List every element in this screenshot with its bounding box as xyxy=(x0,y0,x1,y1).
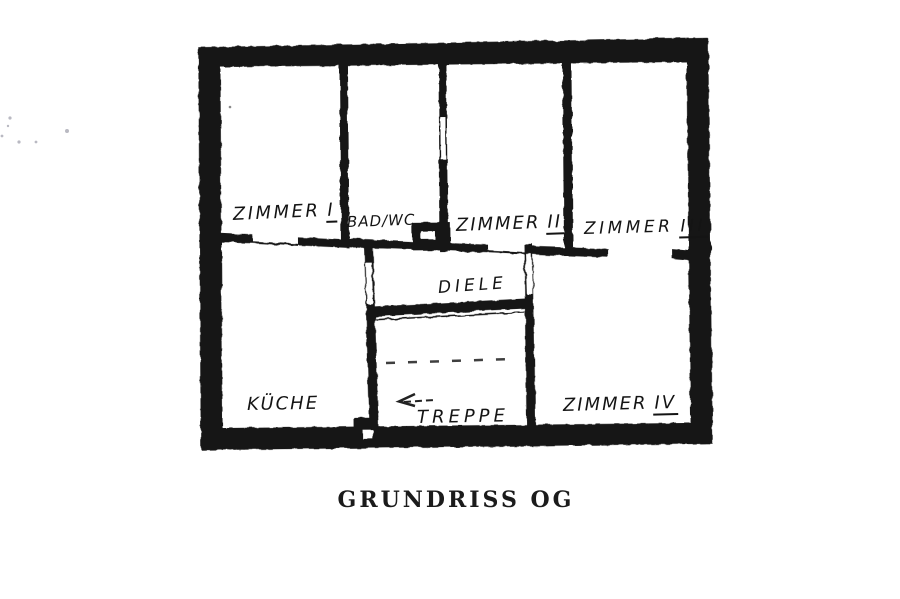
room-name: ZIMMER xyxy=(232,200,320,225)
speck-dot xyxy=(7,125,9,127)
room-numeral: II xyxy=(545,213,564,235)
room-name: ZIMMER xyxy=(456,212,541,236)
room-name: TREPPE xyxy=(417,405,509,428)
speck-dot xyxy=(8,116,11,119)
room-numeral: I xyxy=(325,201,338,222)
stairs-arrow-head xyxy=(399,394,415,406)
room-label-zimmer-4: ZIMMERIV xyxy=(563,394,679,418)
room-label-zimmer-2: ZIMMERII xyxy=(456,213,565,238)
wall-zimmer1-bottom-left xyxy=(216,233,253,243)
walls-group xyxy=(197,38,713,450)
plan-caption: GRUNDRISS OG xyxy=(338,487,575,513)
room-numeral: IV xyxy=(652,394,678,416)
speck-dot xyxy=(1,135,4,138)
door-badwc-zimmer2 xyxy=(440,117,445,159)
room-numeral: III xyxy=(678,218,708,239)
room-name: BAD/WC xyxy=(347,211,416,231)
stairs-dashed-line xyxy=(386,359,512,363)
door-treppe-bottom xyxy=(363,430,373,439)
speck-dot xyxy=(65,129,69,133)
room-name: KÜCHE xyxy=(247,393,319,415)
room-label-kueche: KÜCHE xyxy=(247,395,319,414)
room-name: ZIMMER xyxy=(563,393,648,416)
speck-dot xyxy=(229,106,232,109)
threshold-zimmer1-door xyxy=(253,242,298,245)
room-label-zimmer-3: ZIMMERIII xyxy=(584,218,709,241)
photocopy-specks xyxy=(1,106,232,144)
floorplan-page: ZIMMERI BAD/WC ZIMMERII ZIMMERIII DIELE … xyxy=(0,0,900,599)
room-label-bad-wc: BAD/WC xyxy=(347,213,416,230)
speck-dot xyxy=(17,140,20,143)
wall-step-bump xyxy=(354,418,374,429)
room-label-diele: DIELE xyxy=(437,275,507,297)
speck-dot xyxy=(35,141,38,144)
room-label-treppe: TREPPE xyxy=(417,407,509,427)
wall-zimmer3-stub xyxy=(672,249,694,261)
room-name: ZIMMER xyxy=(584,217,674,239)
stairs-arrow-tail xyxy=(404,400,434,402)
wall-zimmer4-top xyxy=(532,246,608,259)
chimney-opening xyxy=(421,231,435,239)
stairs-symbols xyxy=(386,359,512,406)
wall-diele-top-left xyxy=(448,243,488,253)
